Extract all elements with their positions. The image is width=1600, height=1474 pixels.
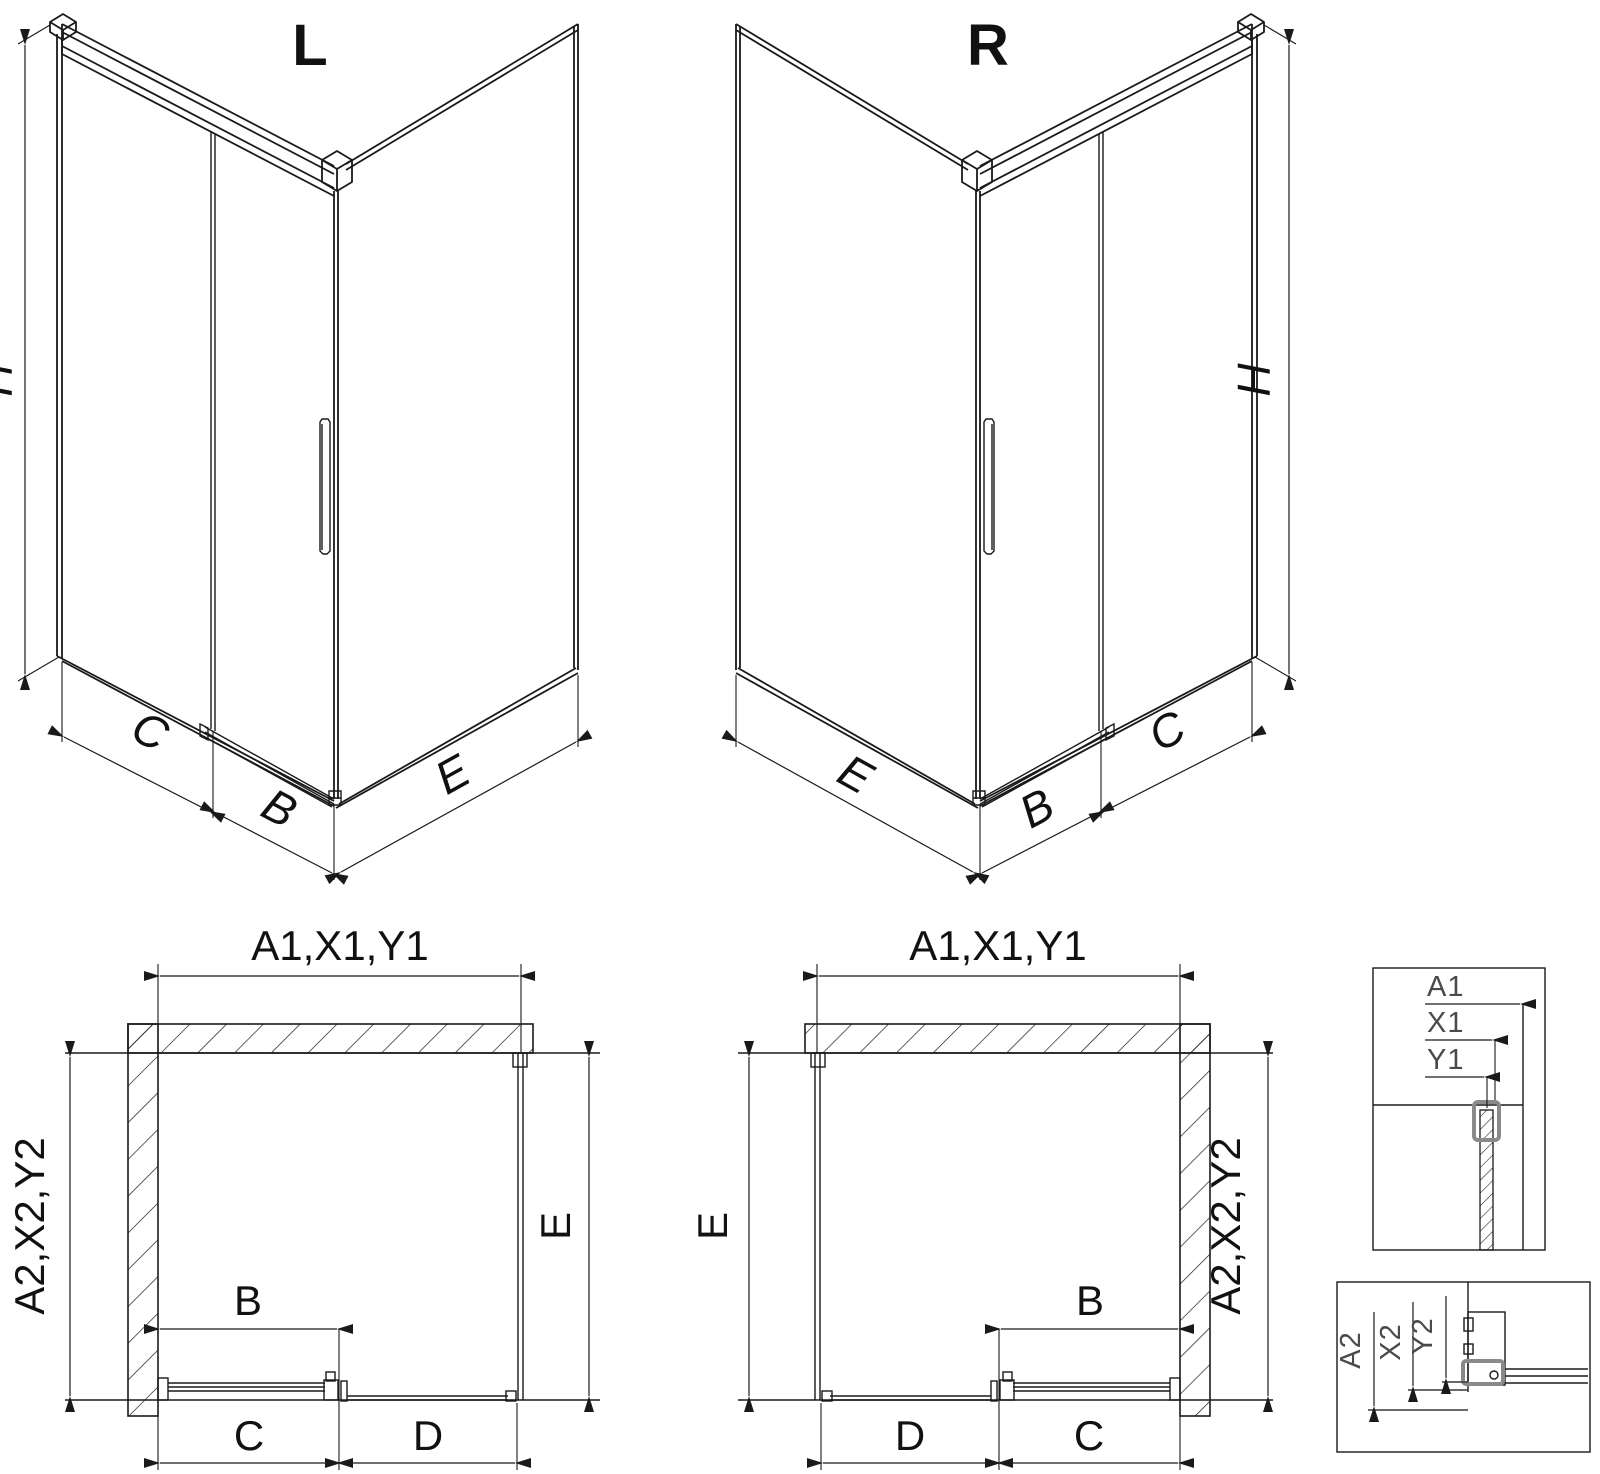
wall-hatch-top-right-plan: [805, 1024, 1210, 1053]
dim-label-E-right: E: [830, 744, 883, 805]
view-title-left: L: [292, 13, 327, 78]
dim-label-C-right: C: [1140, 700, 1194, 762]
wall-hatch-side-left-plan: [128, 1024, 158, 1416]
detail-label-X1: X1: [1427, 1007, 1464, 1039]
detail-label-A1: A1: [1427, 971, 1464, 1003]
technical-drawing-canvas: L H C B E R H C B E A1,X1,Y1 A2,X2,Y2 E …: [0, 0, 1600, 1474]
isometric-view-left: L H C B E: [0, 13, 578, 880]
plan-view-right: A1,X1,Y1 E A2,X2,Y2 B D C: [689, 922, 1273, 1470]
dim-label-C-left: C: [124, 700, 178, 762]
plan-view-left: A1,X1,Y1 A2,X2,Y2 E B C D: [6, 922, 600, 1470]
detail-label-A2: A2: [1335, 1331, 1367, 1368]
dim-label-C-left-plan: C: [234, 1412, 264, 1459]
detail-view-bottom-roller: A2 X2 Y2: [1335, 1282, 1590, 1452]
dim-label-B-left-plan: B: [234, 1277, 262, 1324]
dim-label-A2X2Y2-right-plan: A2,X2,Y2: [1202, 1137, 1249, 1314]
detail-label-X2: X2: [1375, 1323, 1407, 1360]
dim-label-E-left-plan: E: [532, 1212, 579, 1240]
dim-label-A1X1Y1-left-plan: A1,X1,Y1: [251, 922, 428, 969]
dim-label-A2X2Y2-left-plan: A2,X2,Y2: [6, 1137, 53, 1314]
glass-panel-section: [1480, 1110, 1493, 1250]
technical-drawing-page: L H C B E R H C B E A1,X1,Y1 A2,X2,Y2 E …: [0, 0, 1600, 1474]
detail-label-Y2: Y2: [1407, 1317, 1439, 1354]
wall-hatch-top-left-plan: [128, 1024, 533, 1053]
detail-label-Y1: Y1: [1427, 1044, 1464, 1076]
dim-label-B-right-plan: B: [1076, 1277, 1104, 1324]
dim-label-D-right-plan: D: [895, 1412, 925, 1459]
dim-label-D-left-plan: D: [413, 1412, 443, 1459]
dim-label-A1X1Y1-right-plan: A1,X1,Y1: [909, 922, 1086, 969]
view-title-right: R: [967, 13, 1009, 78]
detail-view-top-fixing: A1 X1 Y1: [1373, 968, 1545, 1250]
dim-label-H-right: H: [1228, 363, 1280, 397]
isometric-view-right: R H C B E: [736, 13, 1296, 880]
dim-label-H-left: H: [0, 363, 22, 397]
dim-label-E-right-plan: E: [689, 1212, 736, 1240]
dim-label-C-right-plan: C: [1074, 1412, 1104, 1459]
roller-wheel: [1490, 1371, 1498, 1379]
